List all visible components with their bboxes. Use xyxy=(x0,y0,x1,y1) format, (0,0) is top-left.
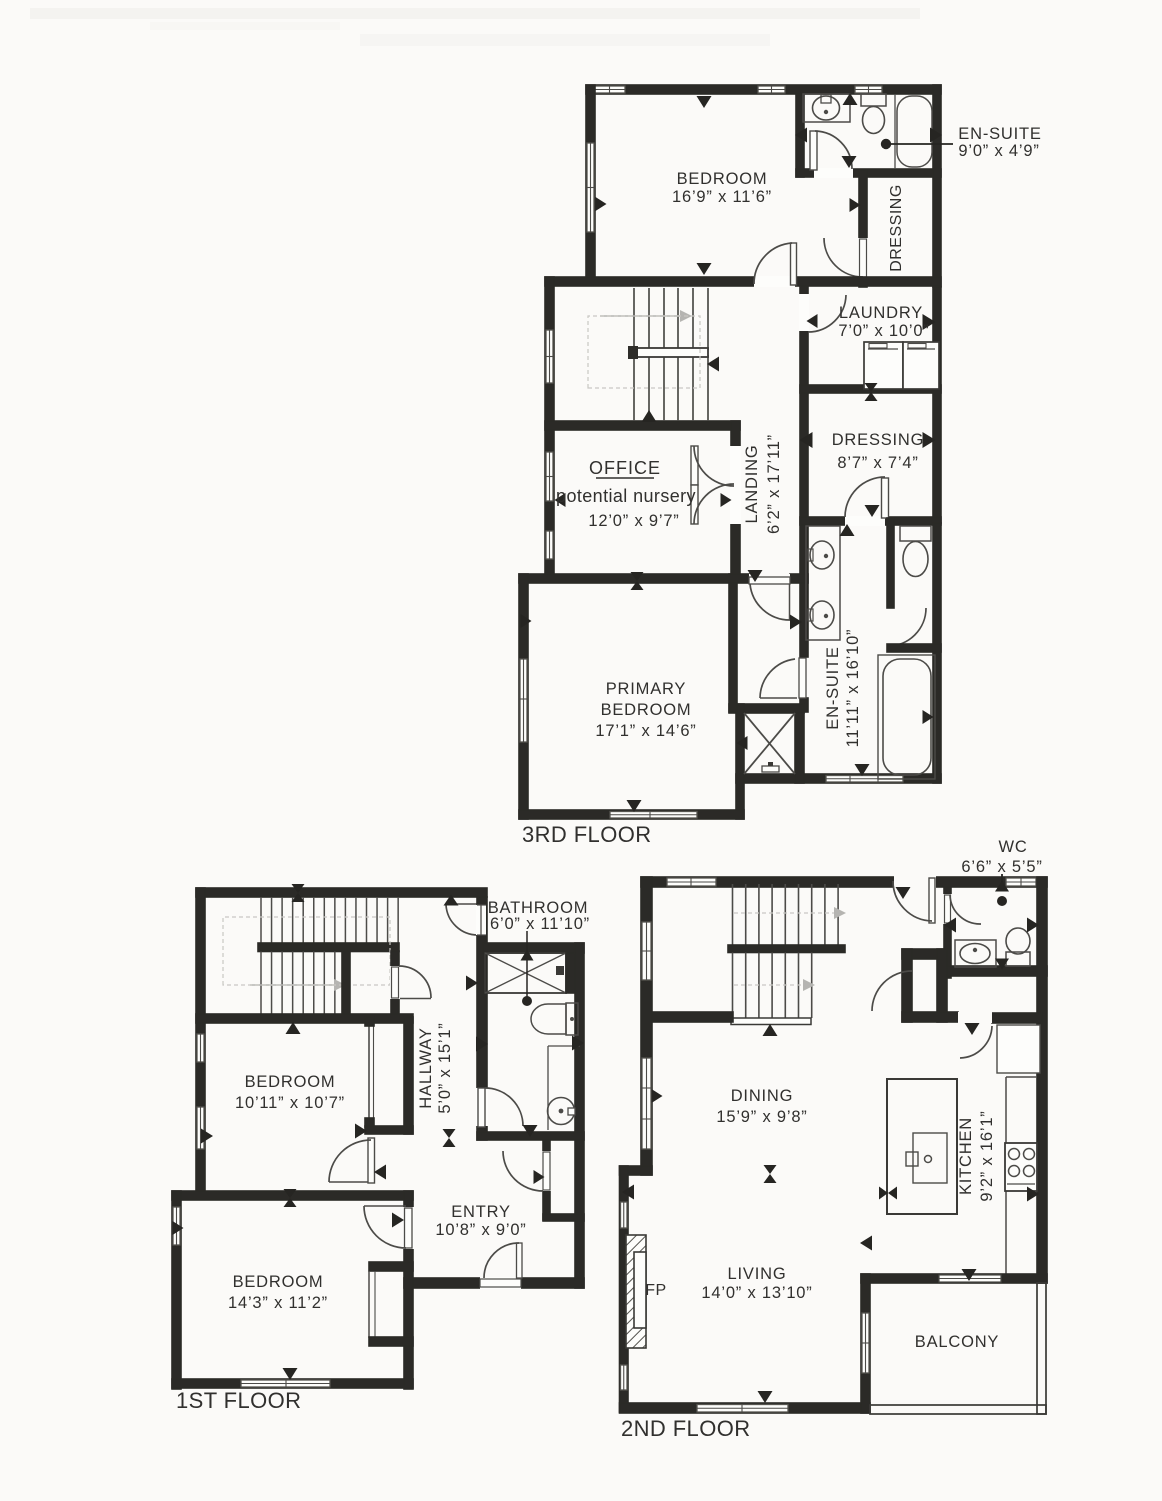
svg-text:15’9” x 9’8”: 15’9” x 9’8” xyxy=(716,1108,807,1126)
svg-text:17’1” x 14’6”: 17’1” x 14’6” xyxy=(595,722,696,740)
svg-text:3RD FLOOR: 3RD FLOOR xyxy=(522,822,652,847)
svg-text:6’2” x 17’11”: 6’2” x 17’11” xyxy=(765,434,783,534)
svg-text:2ND FLOOR: 2ND FLOOR xyxy=(621,1416,751,1441)
svg-text:14’3” x 11’2”: 14’3” x 11’2” xyxy=(228,1294,328,1312)
svg-text:14’0” x 13’10”: 14’0” x 13’10” xyxy=(701,1284,812,1302)
svg-text:12’0” x 9’7”: 12’0” x 9’7” xyxy=(588,512,679,530)
svg-text:DRESSING: DRESSING xyxy=(832,431,925,449)
svg-text:KITCHEN: KITCHEN xyxy=(957,1117,975,1195)
svg-text:BEDROOM: BEDROOM xyxy=(233,1273,324,1291)
svg-text:9’2” x 16’1”: 9’2” x 16’1” xyxy=(978,1110,996,1201)
svg-text:6’0” x 11’10”: 6’0” x 11’10” xyxy=(490,915,590,933)
svg-text:16’9” x 11’6”: 16’9” x 11’6” xyxy=(672,188,772,206)
svg-text:BEDROOM: BEDROOM xyxy=(245,1073,336,1091)
svg-text:5’0” x 15’1”: 5’0” x 15’1” xyxy=(436,1022,454,1113)
svg-text:6’6” x 5’5”: 6’6” x 5’5” xyxy=(961,858,1042,876)
svg-text:BEDROOM: BEDROOM xyxy=(677,170,768,188)
svg-text:PRIMARY: PRIMARY xyxy=(606,680,686,698)
svg-text:EN-SUITE: EN-SUITE xyxy=(958,125,1041,143)
svg-text:WC: WC xyxy=(998,838,1027,856)
svg-text:LANDING: LANDING xyxy=(743,445,761,524)
svg-text:1ST FLOOR: 1ST FLOOR xyxy=(176,1388,301,1413)
svg-text:potential nursery: potential nursery xyxy=(556,486,696,506)
svg-text:LIVING: LIVING xyxy=(728,1265,787,1283)
svg-text:DRESSING: DRESSING xyxy=(888,184,905,272)
svg-text:OFFICE: OFFICE xyxy=(589,458,661,478)
svg-text:BALCONY: BALCONY xyxy=(915,1333,999,1351)
svg-text:HALLWAY: HALLWAY xyxy=(417,1027,435,1108)
svg-text:10’11” x 10’7”: 10’11” x 10’7” xyxy=(235,1094,345,1112)
svg-text:8’7” x 7’4”: 8’7” x 7’4” xyxy=(837,454,918,472)
svg-text:7’0” x 10’0”: 7’0” x 10’0” xyxy=(838,322,929,340)
svg-text:11’11” x 16’10”: 11’11” x 16’10” xyxy=(844,629,862,748)
svg-text:EN-SUITE: EN-SUITE xyxy=(824,646,842,729)
svg-text:BEDROOM: BEDROOM xyxy=(601,701,692,719)
svg-text:LAUNDRY: LAUNDRY xyxy=(839,304,923,322)
svg-text:9’0” x 4’9”: 9’0” x 4’9” xyxy=(958,142,1039,160)
svg-text:10’8” x 9’0”: 10’8” x 9’0” xyxy=(435,1221,526,1239)
svg-text:ENTRY: ENTRY xyxy=(451,1203,511,1221)
svg-text:FP: FP xyxy=(645,1282,666,1299)
svg-text:DINING: DINING xyxy=(731,1087,794,1105)
